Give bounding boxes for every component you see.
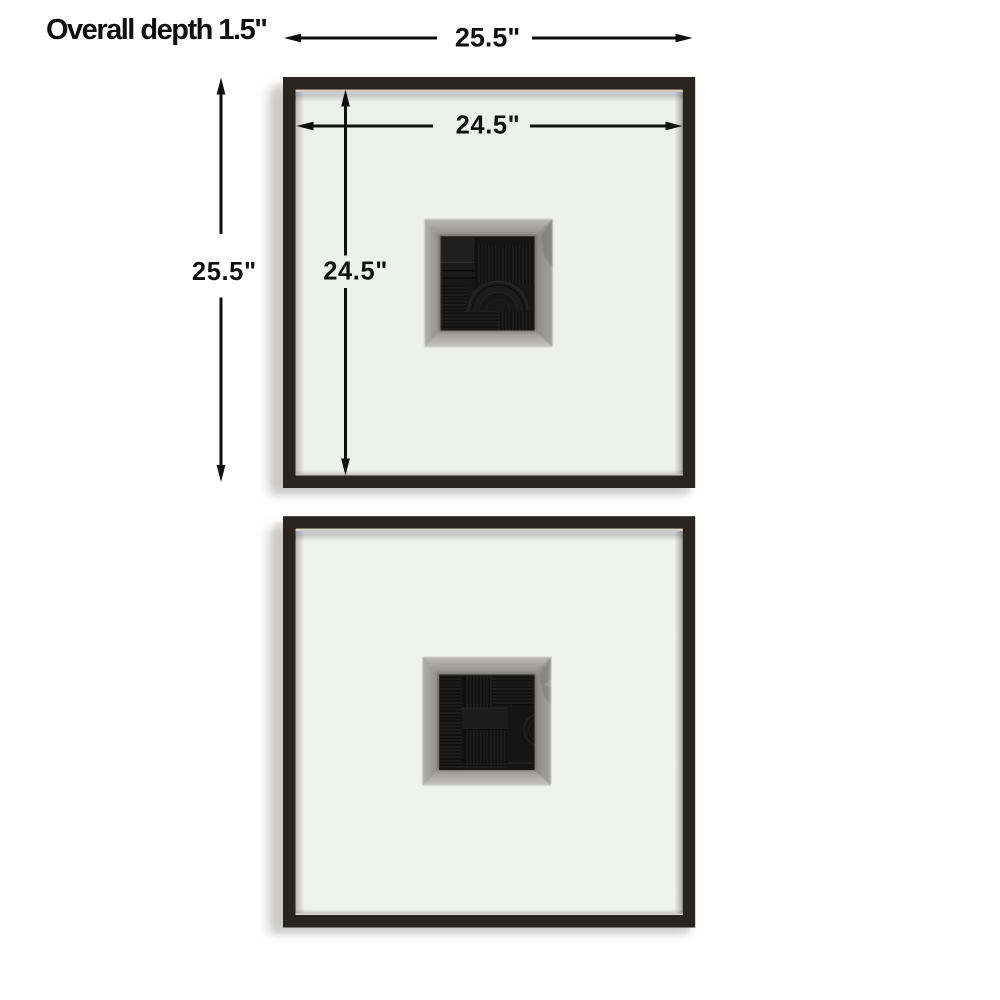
svg-text:24.5": 24.5": [456, 112, 521, 140]
svg-text:Overall depth 1.5": Overall depth 1.5": [46, 14, 266, 46]
svg-text:24.5": 24.5": [323, 258, 388, 286]
svg-text:25.5": 25.5": [455, 23, 520, 53]
svg-text:25.5": 25.5": [192, 258, 257, 286]
